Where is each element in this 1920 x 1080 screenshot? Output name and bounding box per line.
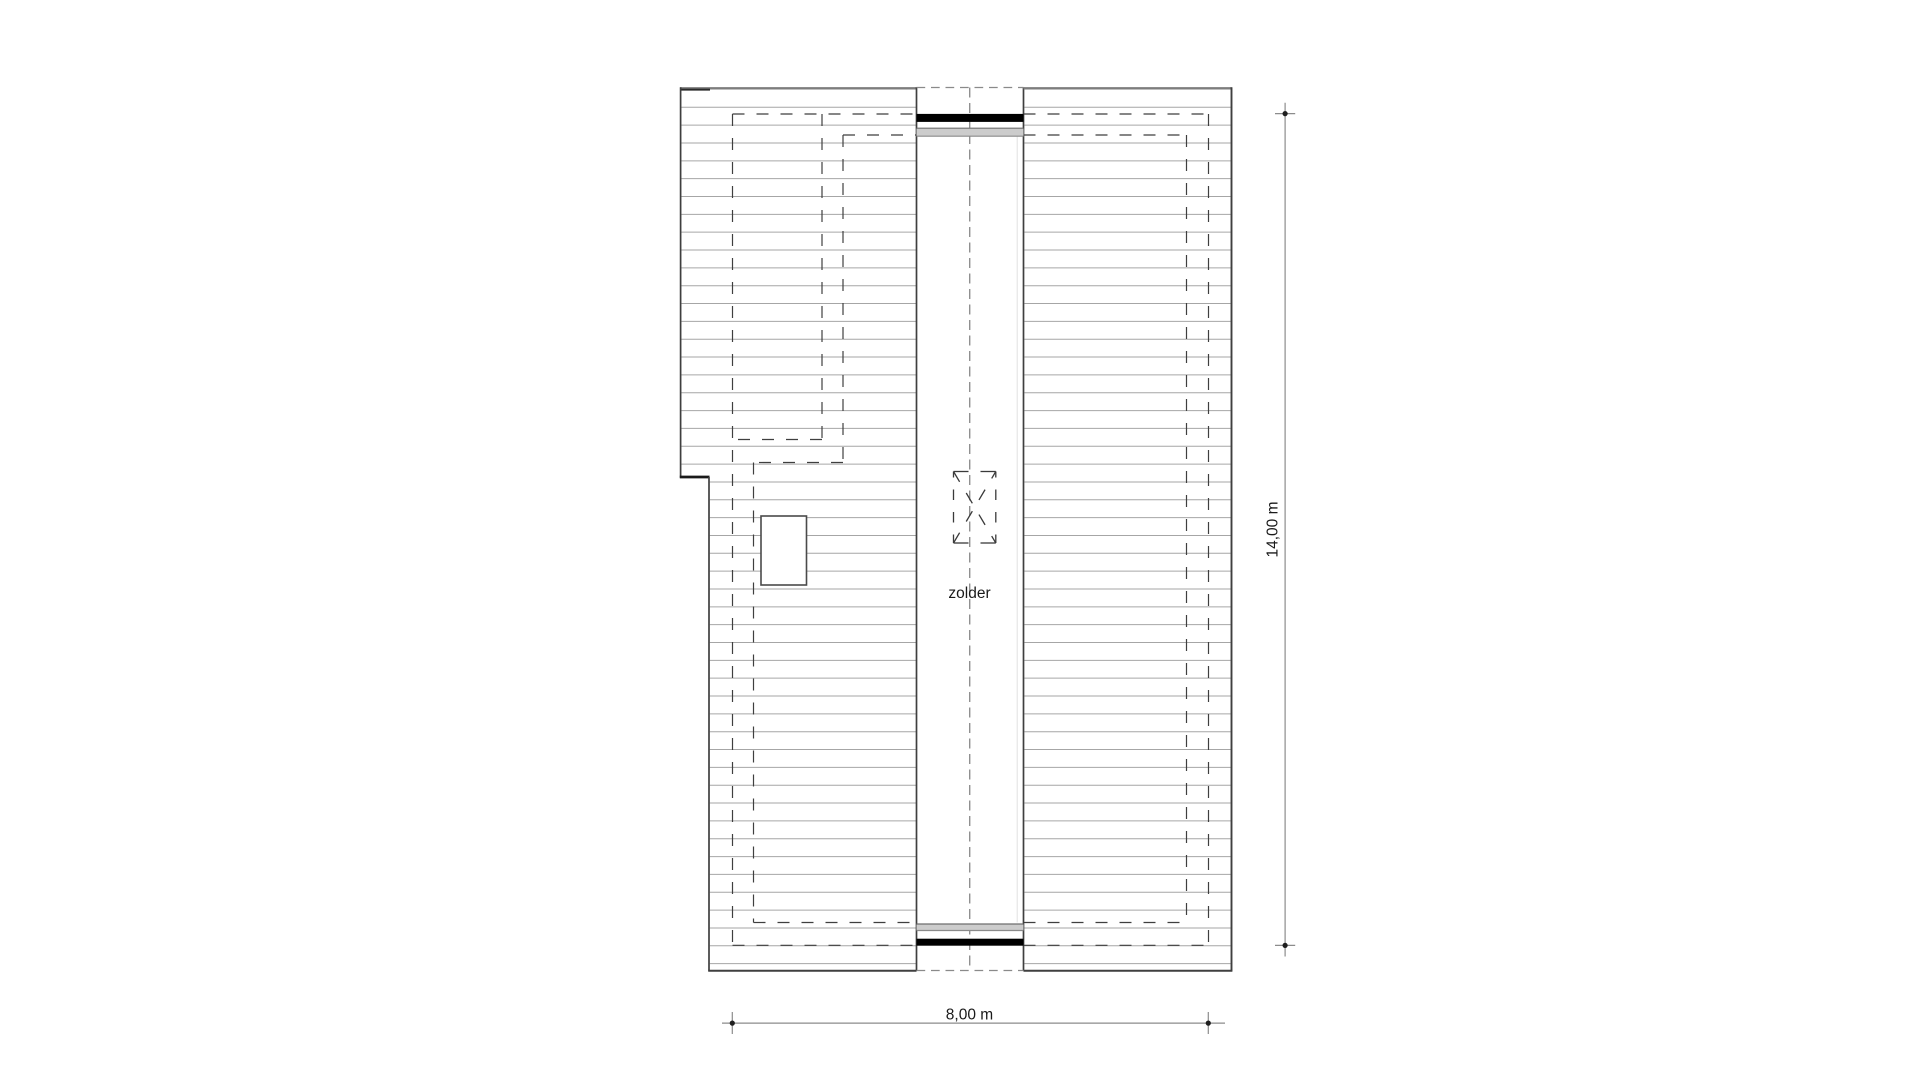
- svg-text:8,00 m: 8,00 m: [946, 1007, 993, 1024]
- svg-text:14,00 m: 14,00 m: [1265, 501, 1282, 557]
- svg-text:zolder: zolder: [948, 585, 990, 602]
